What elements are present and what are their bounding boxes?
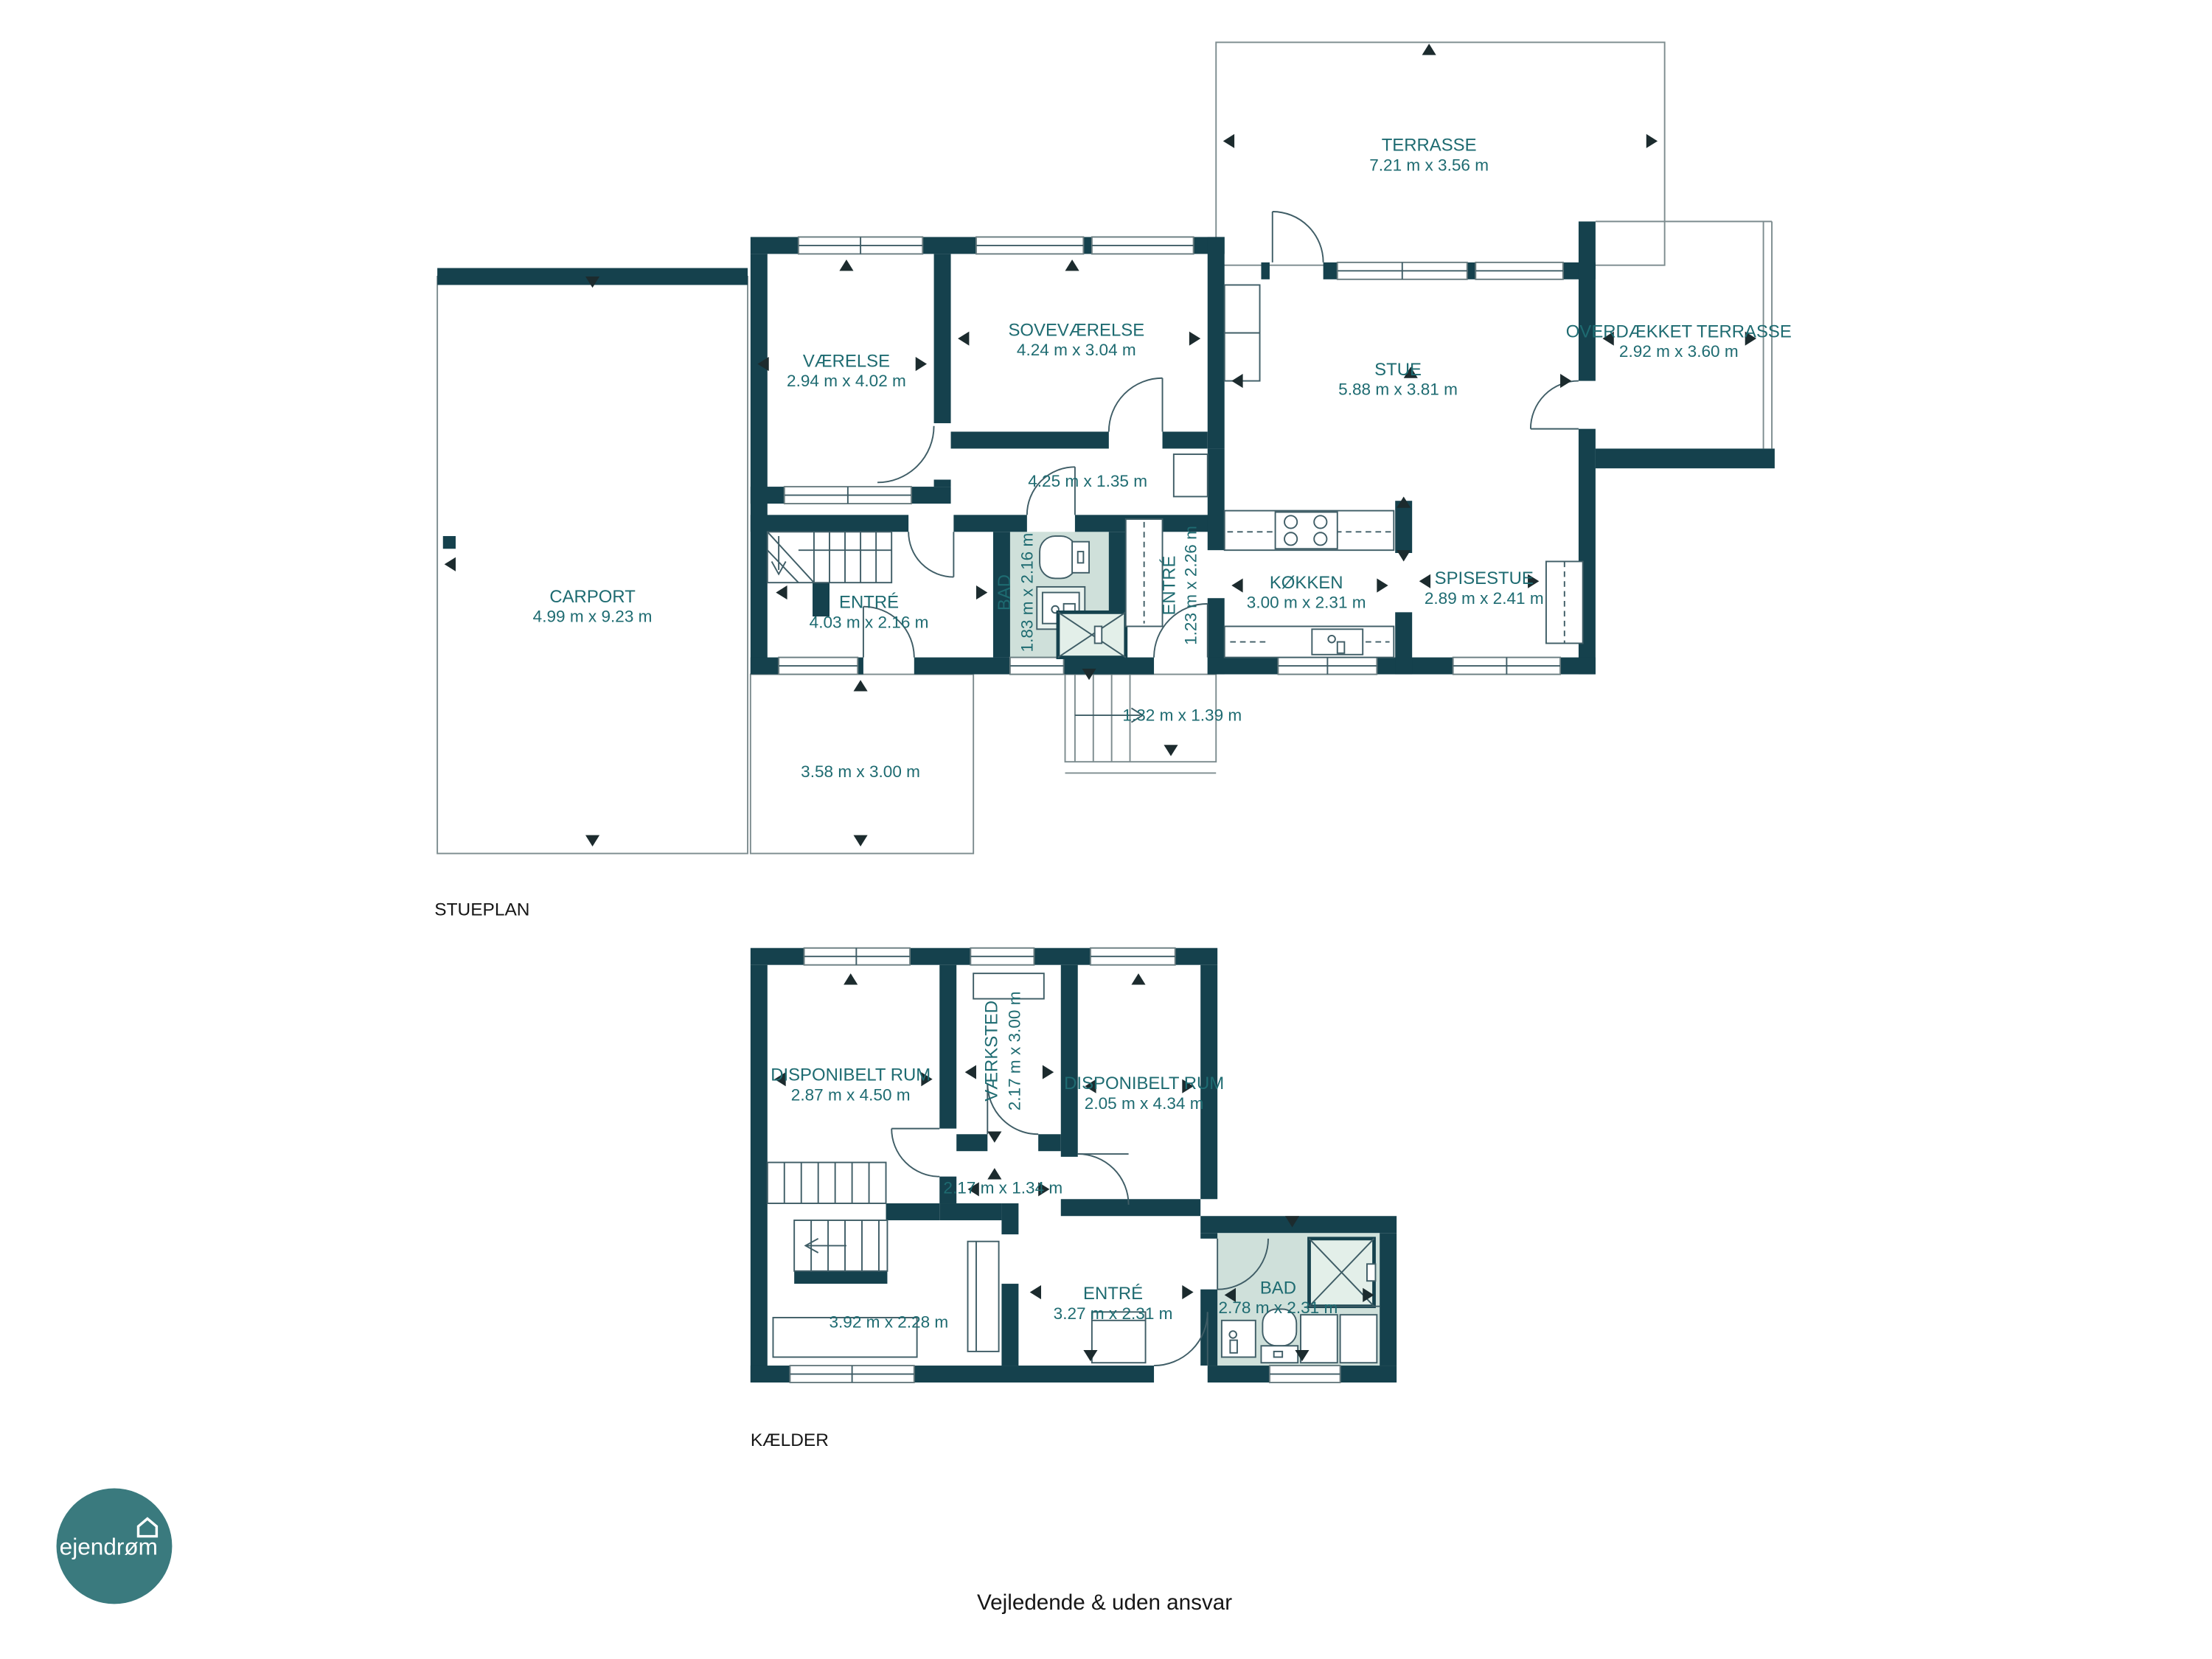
floorplan-canvas: TERRASSE 7.21 m x 3.56 m VÆRELSE 2.94 m … (0, 0, 2212, 1659)
room-spisestue-label: SPISESTUE (1435, 568, 1534, 588)
staircase-basement (768, 1163, 888, 1271)
room-carport-label: CARPORT (549, 587, 636, 607)
hall-wardrobe (1174, 454, 1208, 496)
room-dr1-label: DISPONIBELT RUM (771, 1065, 931, 1085)
floor-stueplan: TERRASSE 7.21 m x 3.56 m VÆRELSE 2.94 m … (434, 42, 1791, 919)
stove-icon (1276, 512, 1338, 549)
entry-wardrobe-column (1126, 519, 1163, 626)
carport-outline (437, 268, 748, 854)
disclaimer-text: Vejledende & uden ansvar (977, 1590, 1232, 1615)
floorplan-page: TERRASSE 7.21 m x 3.56 m VÆRELSE 2.94 m … (0, 0, 2212, 1659)
room-dr1-dims: 2.87 m x 4.50 m (791, 1085, 911, 1104)
floor-kaelder: DISPONIBELT RUM 2.87 m x 4.50 m VÆRKSTED… (751, 948, 1397, 1450)
patio-dims: 3.58 m x 3.00 m (801, 762, 920, 781)
room-bentre-dims: 3.27 m x 2.31 m (1054, 1304, 1173, 1323)
kitchen-counter-sink (1225, 626, 1394, 657)
room-carport-dims: 4.99 m x 9.23 m (533, 608, 653, 626)
shower-icon (1058, 612, 1126, 657)
room-entre-dims: 4.03 m x 2.16 m (810, 613, 929, 631)
room-dr2-dims: 2.05 m x 4.34 m (1085, 1094, 1204, 1113)
room-sovevaerelse-label: SOVEVÆRELSE (1008, 320, 1144, 340)
toilet-icon (1040, 536, 1089, 578)
bath-sink-icon (1222, 1321, 1256, 1357)
appliance-1 (1301, 1315, 1338, 1363)
room-bentre-label: ENTRÉ (1083, 1284, 1143, 1304)
room-nv-dims: 3.92 m x 2.28 m (829, 1312, 948, 1331)
hall-dims: 4.25 m x 1.35 m (1028, 472, 1147, 490)
stue-cabinets (1225, 285, 1260, 380)
room-bbad-dims: 2.78 m x 2.31 m (1219, 1298, 1338, 1317)
kaelder-title: KÆLDER (751, 1430, 829, 1450)
room-entre2-dims: 1.23 m x 2.26 m (1181, 526, 1200, 645)
room-koekken-dims: 3.00 m x 2.31 m (1247, 594, 1366, 612)
exterior-stair-dims: 1.32 m x 1.39 m (1122, 706, 1242, 725)
stueplan-title: STUEPLAN (434, 900, 529, 920)
room-sovevaerelse-dims: 4.24 m x 3.04 m (1017, 341, 1136, 359)
room-overdaekket-dims: 2.92 m x 3.60 m (1619, 342, 1739, 361)
room-terrasse-label: TERRASSE (1382, 136, 1477, 156)
appliance-2 (1340, 1315, 1377, 1363)
room-stue-label: STUE (1374, 360, 1422, 380)
room-vaerelse-dims: 2.94 m x 4.02 m (787, 372, 906, 390)
room-spisestue-dims: 2.89 m x 2.41 m (1425, 589, 1544, 608)
room-entre-label: ENTRÉ (839, 593, 899, 613)
room-terrasse-dims: 7.21 m x 3.56 m (1369, 156, 1489, 175)
toilet-icon (1261, 1310, 1298, 1363)
room-vaerelse-label: VÆRELSE (803, 351, 890, 371)
room-vaerksted-dims: 2.17 m x 3.00 m (1005, 991, 1023, 1110)
basement-hall-dims: 2.17 m x 1.34 m (943, 1179, 1062, 1197)
room-koekken-label: KØKKEN (1270, 573, 1343, 593)
room-dr2-label: DISPONIBELT RUM (1064, 1074, 1224, 1093)
room-bad-label: BAD (995, 574, 1015, 611)
logo: ejendrøm (57, 1488, 173, 1604)
room-vaerksted-label: VÆRKSTED (982, 1001, 1002, 1102)
room-bbad-label: BAD (1260, 1278, 1296, 1298)
kitchen-counter-stove (1225, 511, 1394, 551)
room-bad-dims: 1.83 m x 2.16 m (1018, 533, 1037, 653)
room-overdaekket-label: OVERDÆKKET TERRASSE (1566, 321, 1792, 341)
dining-wardrobe (1546, 561, 1583, 643)
room-entre2-label: ENTRÉ (1160, 555, 1180, 615)
staircase-entre (768, 532, 891, 582)
room-stue-dims: 5.88 m x 3.81 m (1338, 380, 1458, 399)
basement-wardrobe (968, 1242, 999, 1352)
